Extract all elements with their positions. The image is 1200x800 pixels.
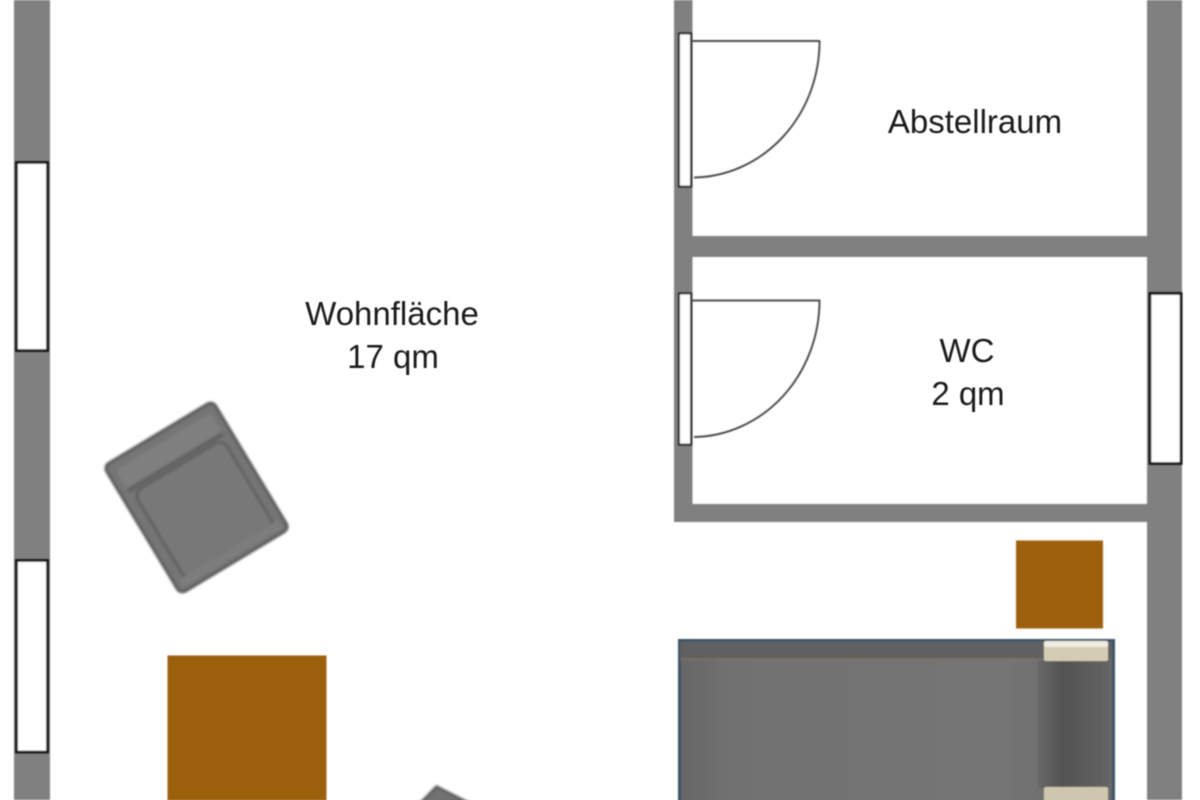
svg-text:2 qm: 2 qm	[931, 375, 1004, 412]
svg-text:Wohnfläche: Wohnfläche	[305, 295, 479, 332]
svg-text:17 qm: 17 qm	[347, 338, 439, 375]
svg-text:Abstellraum: Abstellraum	[888, 103, 1062, 140]
svg-text:WC: WC	[940, 332, 995, 369]
